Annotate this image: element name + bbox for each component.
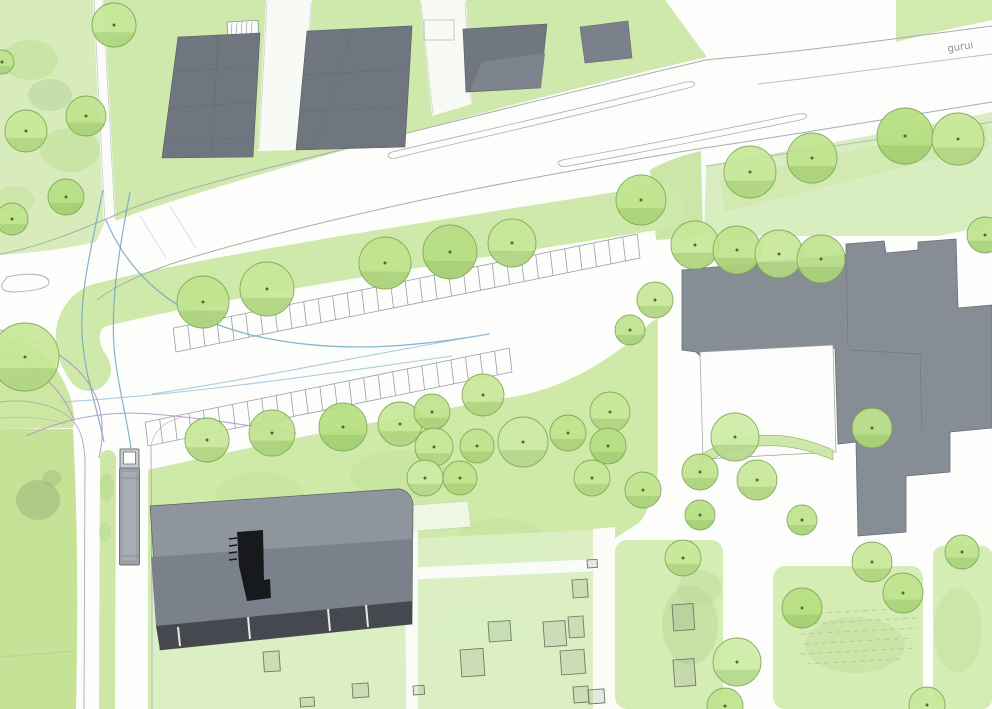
parking-stall-divider bbox=[231, 316, 234, 340]
tree bbox=[852, 542, 892, 582]
layer-truck bbox=[120, 449, 140, 565]
tree bbox=[883, 573, 923, 613]
tree bbox=[852, 408, 892, 448]
tree-trunk-dot bbox=[957, 138, 960, 141]
parking-stall-divider bbox=[304, 302, 307, 326]
tree bbox=[685, 500, 715, 530]
tree bbox=[932, 113, 984, 165]
tree-trunk-dot bbox=[65, 196, 68, 199]
tree bbox=[782, 588, 822, 628]
tree bbox=[665, 540, 701, 576]
garden-shed bbox=[413, 685, 425, 695]
traffic-island bbox=[2, 274, 49, 292]
field-smudge bbox=[16, 480, 60, 520]
tree bbox=[877, 108, 933, 164]
tree-trunk-dot bbox=[85, 115, 88, 118]
tree-trunk-dot bbox=[522, 441, 525, 444]
parking-stall-divider bbox=[608, 240, 611, 264]
garden-shed bbox=[488, 620, 511, 641]
tree-trunk-dot bbox=[202, 301, 205, 304]
tree bbox=[671, 221, 719, 269]
building-north-4 bbox=[580, 21, 632, 63]
tree-trunk-dot bbox=[607, 445, 610, 448]
tree bbox=[185, 418, 229, 462]
garden-shed bbox=[460, 648, 485, 677]
tree-trunk-dot bbox=[449, 251, 452, 254]
parking-stall-divider bbox=[434, 275, 437, 299]
parking-stall-divider bbox=[407, 369, 410, 393]
tree bbox=[498, 417, 548, 467]
tree-shade bbox=[360, 272, 409, 290]
tree bbox=[177, 276, 229, 328]
building-north-2 bbox=[296, 26, 412, 150]
tree-trunk-dot bbox=[811, 157, 814, 160]
tree-trunk-dot bbox=[206, 439, 209, 442]
tree bbox=[249, 410, 295, 456]
garden-shed bbox=[673, 659, 696, 687]
tree-trunk-dot bbox=[801, 607, 804, 610]
parking-stall-divider bbox=[550, 252, 553, 276]
parking-stall-divider bbox=[349, 381, 352, 405]
tree-trunk-dot bbox=[642, 489, 645, 492]
tree-trunk-dot bbox=[482, 394, 485, 397]
tree bbox=[945, 535, 979, 569]
garden-shed bbox=[300, 697, 315, 707]
tree bbox=[711, 413, 759, 461]
grass-mottle bbox=[28, 79, 72, 111]
parking-stall-divider bbox=[420, 278, 423, 302]
tree-trunk-dot bbox=[384, 262, 387, 265]
tree bbox=[682, 454, 718, 490]
garden-shed bbox=[573, 686, 589, 703]
parking-stall-divider bbox=[160, 419, 163, 443]
tree-trunk-dot bbox=[694, 244, 697, 247]
tree-trunk-dot bbox=[459, 477, 462, 480]
tree-trunk-dot bbox=[1, 61, 4, 64]
tree-trunk-dot bbox=[820, 258, 823, 261]
tree-trunk-dot bbox=[801, 519, 804, 522]
tree-trunk-dot bbox=[11, 218, 14, 221]
tree-trunk-dot bbox=[609, 411, 612, 414]
tree-trunk-dot bbox=[871, 561, 874, 564]
garden-path-vertical bbox=[593, 527, 615, 709]
parking-stall-divider bbox=[289, 305, 292, 329]
tree bbox=[574, 460, 610, 496]
garden-shed bbox=[543, 620, 567, 646]
tree bbox=[713, 638, 761, 686]
tree-trunk-dot bbox=[424, 477, 427, 480]
tree bbox=[787, 133, 837, 183]
tree-trunk-dot bbox=[25, 130, 28, 133]
parking-stall-divider bbox=[173, 328, 176, 352]
plot-mottle bbox=[934, 588, 982, 672]
tree bbox=[713, 226, 761, 274]
tree-trunk-dot bbox=[984, 234, 987, 237]
tree bbox=[0, 203, 28, 235]
tree bbox=[359, 237, 411, 289]
parking-stall-divider bbox=[188, 325, 191, 349]
crossing-marks bbox=[140, 206, 196, 258]
tree-trunk-dot bbox=[904, 135, 907, 138]
tree-trunk-dot bbox=[654, 299, 657, 302]
parking-stall-divider bbox=[376, 287, 379, 311]
parking-stall-divider bbox=[495, 351, 498, 375]
tree-trunk-dot bbox=[756, 479, 759, 482]
parking-stall-divider bbox=[637, 234, 640, 258]
tree bbox=[737, 460, 777, 500]
tree-shade bbox=[241, 298, 292, 317]
parking-stall-divider bbox=[347, 293, 350, 317]
plot-mottle bbox=[805, 617, 905, 673]
field-green bbox=[0, 429, 77, 709]
tree-trunk-dot bbox=[640, 199, 643, 202]
site-plan-canvas: gurui bbox=[0, 0, 992, 709]
tree-shade bbox=[638, 306, 672, 318]
tree bbox=[615, 315, 645, 345]
tree bbox=[92, 3, 136, 47]
tree bbox=[407, 460, 443, 496]
tree bbox=[443, 461, 477, 495]
garden-shed bbox=[352, 683, 369, 698]
tree-trunk-dot bbox=[734, 436, 737, 439]
tree bbox=[240, 262, 294, 316]
tree-trunk-dot bbox=[511, 242, 514, 245]
tree-trunk-dot bbox=[724, 705, 727, 708]
tree-trunk-dot bbox=[682, 557, 685, 560]
site-plan-viewport: gurui bbox=[0, 0, 992, 709]
tree-trunk-dot bbox=[342, 426, 345, 429]
tree bbox=[637, 282, 673, 318]
tree bbox=[423, 225, 477, 279]
parking-stall-divider bbox=[320, 387, 323, 411]
tree bbox=[488, 219, 536, 267]
hedge-blob bbox=[99, 522, 111, 542]
tree bbox=[590, 428, 626, 464]
parking-stall-divider bbox=[492, 264, 495, 288]
parking-stall-divider bbox=[145, 422, 148, 446]
parking-stall-divider bbox=[364, 378, 367, 402]
tree bbox=[414, 394, 450, 430]
parking-stall-divider bbox=[579, 246, 582, 270]
garden-shed bbox=[568, 616, 584, 638]
parking-stall-divider bbox=[233, 404, 236, 428]
tree-shade bbox=[968, 241, 992, 253]
parking-stall-divider bbox=[594, 243, 597, 267]
tree-trunk-dot bbox=[271, 432, 274, 435]
truck-trailer-top bbox=[123, 472, 136, 560]
lane-divider-line bbox=[758, 54, 992, 84]
field-smudge bbox=[42, 470, 62, 486]
parking-stall-divider bbox=[436, 363, 439, 387]
hedge-blob bbox=[100, 473, 114, 501]
tree-shade bbox=[738, 487, 776, 501]
parking-stall-divider bbox=[422, 366, 425, 390]
parking-stall-divider bbox=[405, 281, 408, 305]
parking-stall-divider bbox=[623, 237, 626, 261]
tree-shade bbox=[686, 520, 715, 530]
tree-trunk-dot bbox=[699, 471, 702, 474]
parking-stall-divider bbox=[478, 266, 481, 290]
parking-stall-divider bbox=[466, 357, 469, 381]
tree-trunk-dot bbox=[433, 446, 436, 449]
tree bbox=[550, 415, 586, 451]
tree-trunk-dot bbox=[266, 288, 269, 291]
tree-shade bbox=[712, 445, 758, 462]
truck-cab-window bbox=[124, 452, 136, 464]
tree-trunk-dot bbox=[567, 432, 570, 435]
parking-stall-divider bbox=[378, 375, 381, 399]
garden-shed bbox=[672, 604, 695, 631]
parking-stall-divider bbox=[174, 416, 177, 440]
tree-trunk-dot bbox=[871, 427, 874, 430]
tree-shade bbox=[672, 253, 718, 270]
tree bbox=[625, 472, 661, 508]
tree-trunk-dot bbox=[476, 445, 479, 448]
tree bbox=[462, 374, 504, 416]
tree-trunk-dot bbox=[24, 356, 27, 359]
tree bbox=[787, 505, 817, 535]
tree-trunk-dot bbox=[736, 249, 739, 252]
parking-stall-divider bbox=[291, 393, 294, 417]
tree-shade bbox=[683, 478, 717, 490]
parking-stall-divider bbox=[509, 348, 512, 372]
tree-trunk-dot bbox=[926, 704, 929, 707]
parking-stall-divider bbox=[247, 401, 250, 425]
parking-stall-divider bbox=[333, 296, 336, 320]
tree-shade bbox=[489, 251, 535, 268]
tree-trunk-dot bbox=[749, 171, 752, 174]
tree-trunk-dot bbox=[699, 514, 702, 517]
parking-stall-divider bbox=[305, 390, 308, 414]
tree bbox=[616, 175, 666, 225]
tree-trunk-dot bbox=[591, 477, 594, 480]
parking-stall-divider bbox=[393, 372, 396, 396]
tree bbox=[797, 235, 845, 283]
parking-stall-divider bbox=[565, 249, 568, 273]
tree bbox=[724, 146, 776, 198]
tree-trunk-dot bbox=[961, 551, 964, 554]
parking-stall-divider bbox=[451, 360, 454, 384]
tree bbox=[66, 96, 106, 136]
tree bbox=[319, 403, 367, 451]
garden-shed bbox=[587, 559, 598, 568]
tree bbox=[48, 179, 84, 215]
garden-shed bbox=[263, 651, 280, 672]
tree-shade bbox=[788, 525, 817, 535]
tree-trunk-dot bbox=[736, 661, 739, 664]
tree-trunk-dot bbox=[113, 24, 116, 27]
parking-stall-divider bbox=[362, 290, 365, 314]
tree-trunk-dot bbox=[431, 411, 434, 414]
street-name-label: gurui bbox=[947, 40, 974, 55]
tree bbox=[755, 230, 803, 278]
top-right-corner-green bbox=[896, 0, 992, 42]
tree-trunk-dot bbox=[399, 423, 402, 426]
garden-shed bbox=[560, 649, 586, 675]
tree bbox=[460, 429, 494, 463]
tree-shade bbox=[424, 261, 475, 279]
parking-stall-divider bbox=[318, 299, 321, 323]
garden-shed bbox=[572, 579, 588, 598]
tree bbox=[590, 392, 630, 432]
garden-shed bbox=[588, 689, 605, 704]
tree bbox=[5, 110, 47, 152]
tree-trunk-dot bbox=[778, 253, 781, 256]
parking-stall-divider bbox=[536, 255, 539, 279]
tree-trunk-dot bbox=[902, 592, 905, 595]
tree-trunk-dot bbox=[629, 329, 632, 332]
